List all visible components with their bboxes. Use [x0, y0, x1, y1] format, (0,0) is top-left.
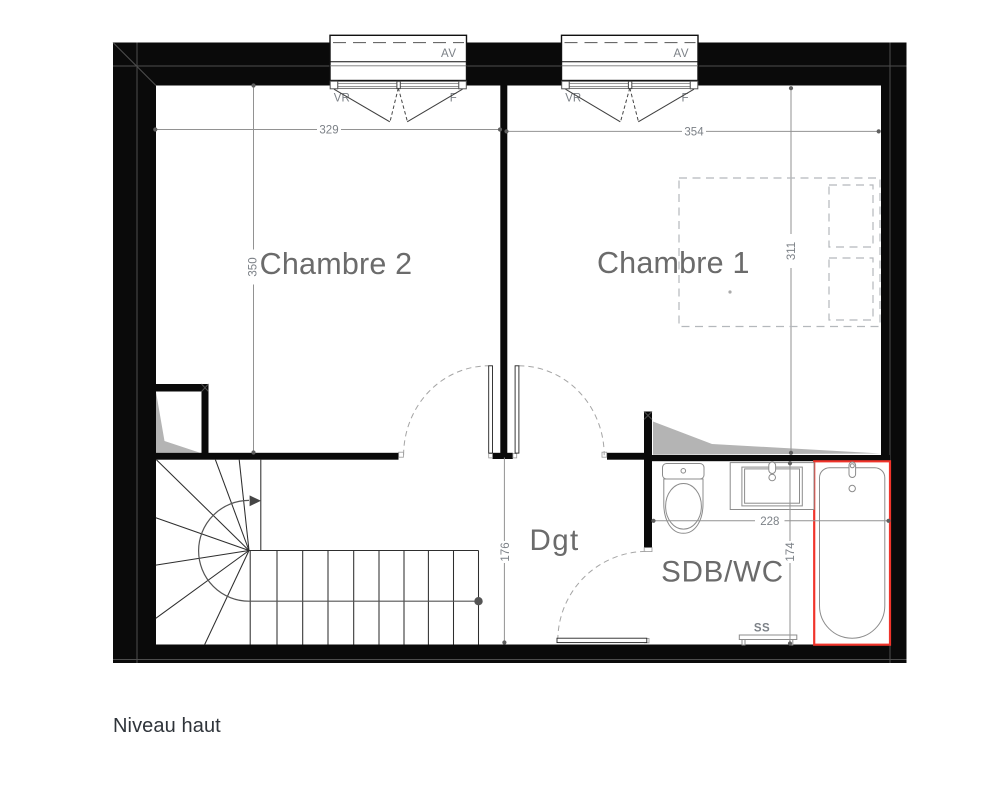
svg-text:174: 174 [785, 542, 797, 562]
svg-text:SS: SS [754, 623, 770, 635]
svg-text:AV: AV [441, 48, 457, 60]
svg-text:228: 228 [760, 516, 779, 528]
svg-text:350: 350 [248, 257, 260, 276]
svg-text:Chambre 1: Chambre 1 [597, 246, 750, 280]
svg-text:354: 354 [684, 127, 704, 139]
svg-text:176: 176 [500, 542, 512, 561]
svg-text:AV: AV [674, 48, 690, 60]
svg-text:311: 311 [786, 242, 798, 260]
svg-text:329: 329 [319, 125, 338, 137]
svg-text:Niveau haut: Niveau haut [113, 715, 221, 737]
svg-text:Chambre 2: Chambre 2 [260, 247, 413, 281]
svg-text:Dgt: Dgt [530, 524, 580, 557]
svg-text:SDB/WC: SDB/WC [661, 556, 784, 589]
